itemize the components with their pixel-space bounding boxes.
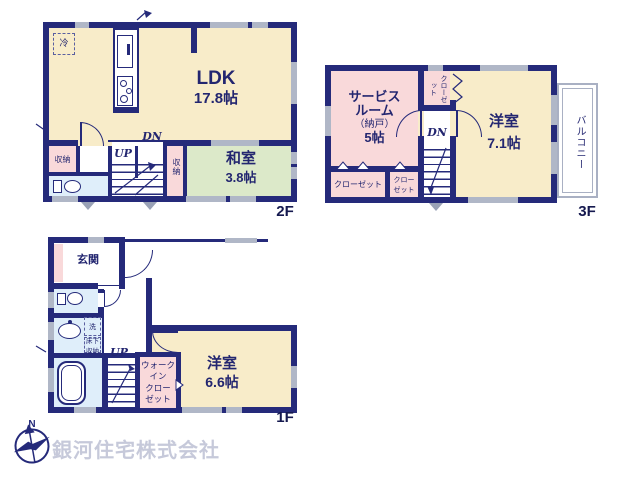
vent-flag-icon [144,10,152,18]
shoe-cabinet [54,244,63,282]
window-marker [186,196,226,202]
room-size-ldk: 17.8帖 [166,91,266,108]
window-marker [226,407,242,413]
wall [146,278,152,331]
burner-icon [120,80,127,87]
window-marker [325,106,331,136]
kitchen-sink-icon [117,35,133,68]
floor-label-2f: 2F [270,203,300,220]
storage-room: 収納 [49,146,76,172]
toilet-bowl-icon [67,292,83,305]
toilet-tank-icon [57,293,66,305]
room-label-washitsu: 和室 [201,151,281,168]
wic-line4: ゼット [145,394,171,405]
wic-line1: ウォーク [141,360,175,371]
vent-marker [81,202,95,210]
wall [191,22,197,53]
vent-flag-icon [137,12,146,20]
bathtub-inner-icon [61,365,82,401]
washbasin-tap-icon [68,320,72,324]
storage-strip: 収納 [167,146,183,196]
window-marker [252,22,268,28]
step-line [98,285,125,286]
storage-label: 収納 [55,154,71,165]
underfloor-line1: 床下 [86,335,99,345]
stairs-1f-treads [108,358,137,407]
closet-b: クロー ゼット [390,172,418,197]
closet-top-label: クローゼット [427,73,448,105]
window-marker [468,197,518,203]
burner-icon [126,88,132,94]
storage-strip-label: 収納 [171,158,182,176]
fridge-space: 冷 [53,33,75,55]
entrance-door-arc [125,250,153,278]
kitchen-stove-icon [117,76,133,106]
stairs-3f-treads [424,143,450,197]
wic-line2: イン [149,371,166,382]
stairs-down-label: DN [139,130,165,143]
room-size-washitsu: 3.8帖 [201,171,281,185]
closet-a-label: クローゼット [334,179,382,190]
vent-marker [143,202,157,210]
window-marker [88,237,104,243]
window-marker [230,196,256,202]
balcony-label: バルコニー [572,115,587,170]
room-size-yoshitsu-3f: 7.1帖 [464,136,544,151]
arrow-marker [36,346,46,352]
kitchen-base [115,107,137,113]
room-size-yoshitsu-1f: 6.6帖 [177,375,267,390]
underfloor-line2: 収納 [86,345,99,355]
room-label-ldk: LDK [166,69,266,90]
closet-b-line2: ゼット [394,185,415,195]
closet-top: クローゼット [424,71,450,105]
window-marker [291,167,297,179]
closet-a: クローゼット [331,172,385,197]
laundry-label: 洗 [89,322,96,332]
stairs-down-label-3f: DN [424,126,450,139]
closet-b-line1: クロー [394,175,415,185]
wall [450,136,456,197]
window-marker [225,238,257,243]
window-marker [551,142,557,174]
window-marker [291,152,297,164]
window-marker [74,407,96,413]
stairs-up-label: UP [110,147,136,160]
window-marker [48,322,54,340]
kitchen-counter [113,28,139,113]
balcony: バルコニー [557,83,598,198]
kitchen-faucet-icon [127,44,130,55]
floorplan-canvas: 冷 LDK 17.8帖 収納 UP DN 収納 和室 3.8帖 2F [0,0,640,480]
genkan-label: 玄関 [66,254,110,266]
window-marker [480,65,528,71]
floor-label-3f: 3F [572,203,602,220]
burner-icon [120,95,128,103]
window-marker [48,292,54,308]
compass-north-label: N [24,419,40,430]
washbasin-icon [58,323,81,339]
door-arc [104,290,121,307]
stairs-up-label-1f: UP [106,346,132,359]
toilet-tank-icon [53,180,62,193]
window-marker [52,196,78,202]
toilet-bowl-icon [64,180,81,193]
room-label-yoshitsu-1f: 洋室 [177,356,267,373]
window-marker [48,368,54,392]
laundry-space: 洗 [84,317,101,336]
window-marker [75,22,89,28]
window-marker [428,65,443,71]
hall-2f [80,146,108,172]
window-marker [551,95,557,125]
walk-in-closet: ウォーク イン クロー ゼット [135,352,181,413]
underfloor-storage: 床下 収納 [84,337,101,353]
wic-line3: クロー [145,383,171,394]
vent-marker [429,203,443,211]
window-marker [182,407,222,413]
fridge-label: 冷 [59,39,68,49]
floor-label-1f: 1F [270,409,300,426]
window-marker [291,366,297,388]
window-marker [291,62,297,104]
room-label-yoshitsu-3f: 洋室 [464,114,544,131]
company-watermark: 銀河住宅株式会社 [52,440,252,462]
window-marker [210,22,248,28]
